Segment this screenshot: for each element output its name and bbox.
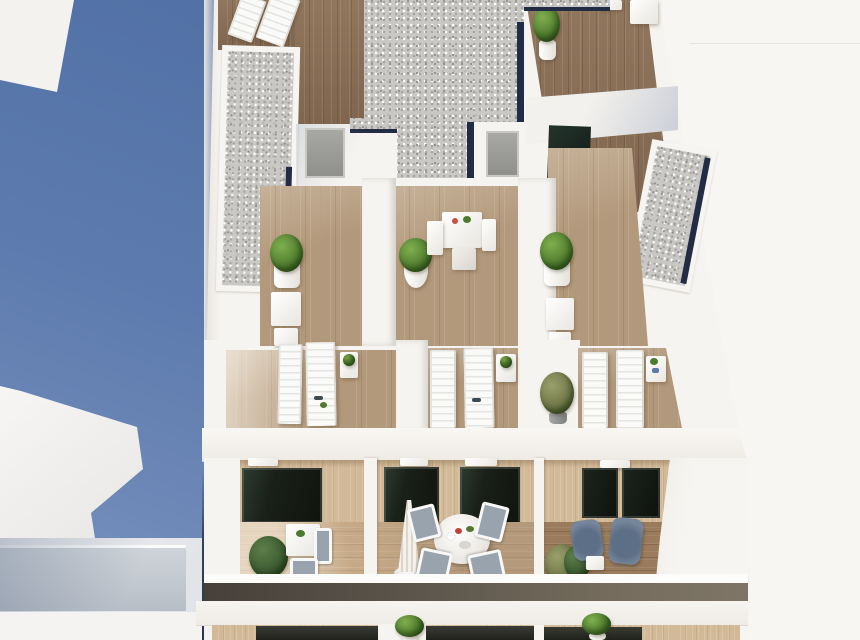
table-decor-red: [455, 528, 462, 534]
glass-door-right-2: [622, 468, 660, 518]
sun-lounger-3a: [582, 352, 608, 428]
parapet-band: [202, 428, 748, 462]
sun-lounger-3b: [616, 350, 644, 428]
lower-opening-2: [426, 626, 534, 640]
balcony-pillar-v1: [364, 458, 377, 586]
left-balcony-table-sprig: [296, 530, 305, 537]
terrace-center-decor-red: [452, 218, 458, 224]
balcony-pillar-v2: [534, 458, 544, 586]
left-balcony-plant: [249, 536, 288, 578]
gravel-center-navy-right: [517, 22, 524, 122]
lower-topiary-2: [582, 613, 611, 635]
balustrade-glass: [204, 583, 748, 602]
terrace-center-chair-left: [427, 221, 443, 255]
facade-vent-3: [465, 458, 497, 466]
side-table-3-item: [652, 368, 659, 373]
lower-opening-1: [256, 626, 378, 640]
glass-door-left-balcony: [242, 468, 322, 523]
terrace-right-bush: [540, 232, 573, 270]
terrace-center-table: [442, 212, 482, 248]
side-table-3-leaf: [650, 358, 658, 365]
lounger-row-left-wall: [204, 340, 228, 432]
slab-left-white: [0, 612, 208, 640]
terrace-center-decor-green: [463, 216, 471, 223]
gravel-center-navy-top: [524, 7, 610, 11]
lower-topiary-1: [395, 615, 424, 637]
glass-door-right-1: [582, 468, 618, 518]
lounger-divider-c: [396, 340, 428, 432]
roof-chair-top-right: [630, 0, 658, 24]
sun-lounger-1a: [277, 344, 302, 424]
lower-divider-2: [534, 625, 544, 640]
sun-lounger-1b: [305, 342, 336, 427]
table-decor-green: [466, 526, 474, 532]
side-table-1-plant: [343, 354, 355, 366]
terrace-right-table: [546, 298, 574, 330]
facade-vent-2: [400, 458, 428, 466]
lounger-1b-sunglasses: [314, 396, 323, 400]
table-decor-cup: [447, 533, 455, 540]
terrace-divider-a: [362, 178, 396, 346]
lounger-2b-sunglasses: [472, 398, 481, 402]
facade-vent-4: [600, 460, 630, 468]
gravel-center-navy-right2: [467, 122, 474, 178]
armchair-2: [608, 516, 645, 565]
background-seam-line: [690, 43, 860, 44]
lounger-terrace-1-sunwash: [226, 350, 316, 428]
access-door-left: [305, 128, 345, 178]
terrace-left-bush: [270, 234, 303, 272]
access-door-center: [486, 131, 519, 177]
right-balcony-side-table: [586, 556, 604, 570]
balcony-pillar-left: [204, 458, 240, 586]
floor-slab-band: [196, 601, 748, 626]
sun-lounger-2a: [430, 350, 456, 428]
architectural-render: [0, 0, 860, 640]
terrace-center-stool: [452, 248, 476, 270]
divider-bush: [540, 372, 574, 414]
facade-vent-1: [248, 458, 278, 466]
lounger-1b-leaf: [320, 402, 327, 408]
side-table-2-plant: [500, 356, 512, 368]
balustrade-rail: [204, 574, 748, 583]
table-decor-plate: [459, 541, 471, 549]
sun-lounger-2b: [463, 348, 494, 429]
terrace-left-table: [271, 292, 301, 326]
terrace-center-chair-right: [482, 219, 496, 251]
